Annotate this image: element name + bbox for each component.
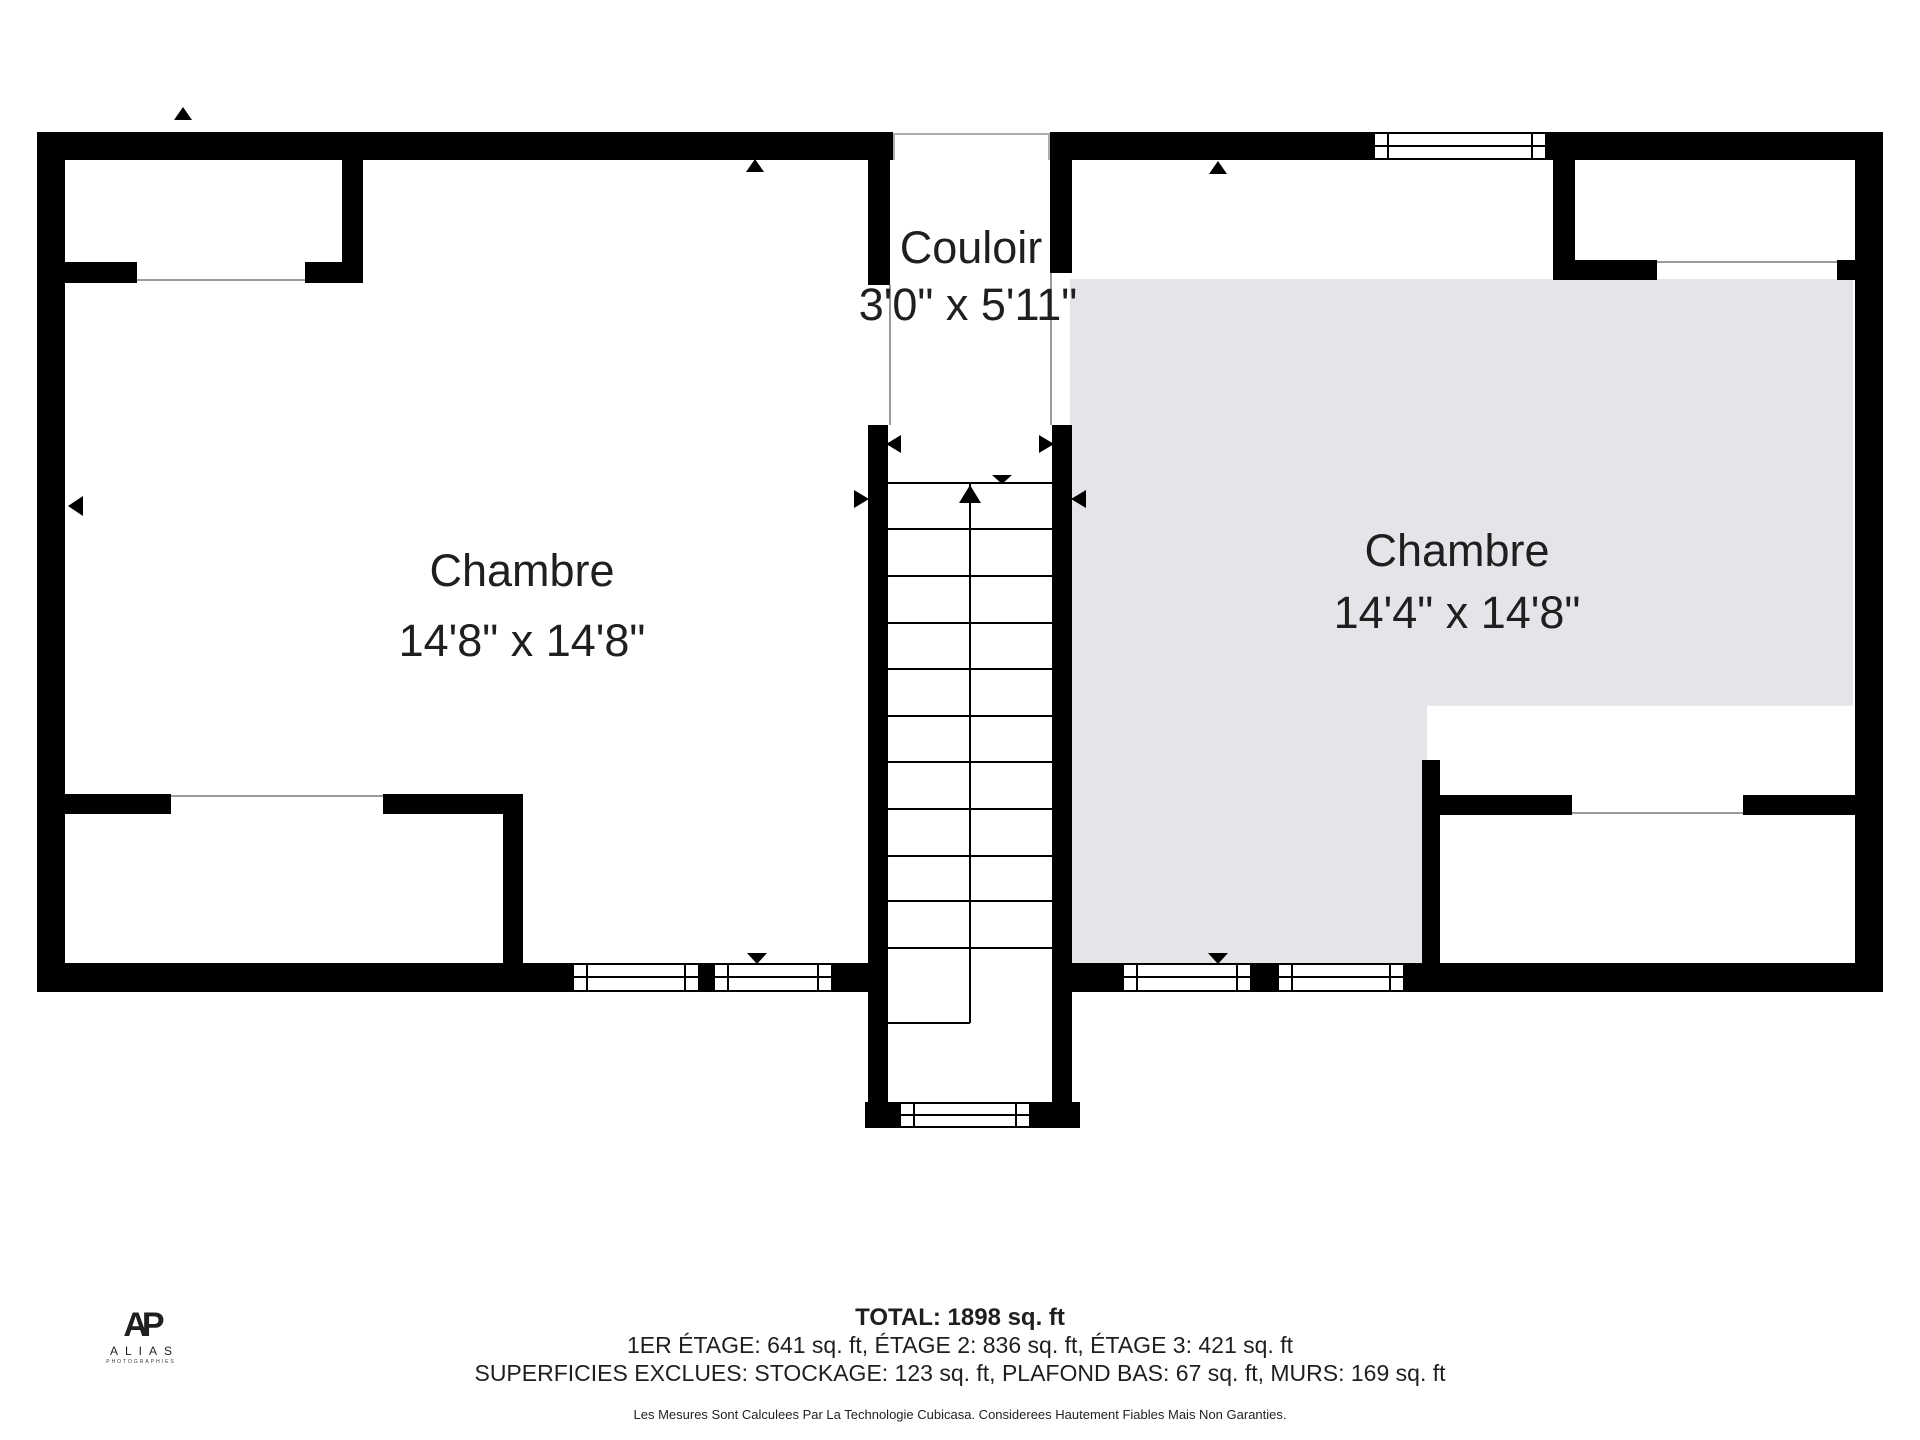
- right-bedroom-label: Chambre: [1197, 525, 1717, 577]
- stair-center-divider-line: [969, 482, 971, 1023]
- window-pane-line: [1124, 976, 1250, 978]
- closet-bottomleft-top-wall-b: [383, 794, 523, 814]
- window-cap: [1387, 134, 1389, 158]
- total-area-text: TOTAL: 1898 sq. ft: [0, 1304, 1920, 1332]
- left-bedroom-label: Chambre: [262, 545, 782, 597]
- alias-logo: AP ALIAS PHOTOGRAPHIES: [96, 1308, 186, 1365]
- closet-bottomright-door-line: [1572, 812, 1743, 814]
- window-bottom-right-2: [1277, 963, 1405, 992]
- closet-bottomleft-door-line: [171, 795, 383, 797]
- closet-bottomright-top-wall-b: [1743, 795, 1861, 815]
- closet-topleft-bottom-wall-b: [305, 262, 363, 283]
- window-bottom-right-1: [1122, 963, 1252, 992]
- door-marker-right-room-top-icon: [1209, 161, 1227, 174]
- window-pane-line: [1279, 976, 1403, 978]
- window-pane-line: [1375, 145, 1545, 147]
- wall-top-left-segment: [37, 132, 893, 160]
- door-marker-stair-left-icon: [886, 435, 901, 453]
- window-cap: [684, 965, 686, 990]
- hallway-dimensions: 3'0" x 5'11": [708, 279, 1228, 331]
- window-pane-line: [574, 976, 698, 978]
- wall-left-outer: [37, 132, 65, 992]
- alias-logo-monogram: AP: [96, 1308, 186, 1342]
- vestibule-bottom-wall-a: [865, 1102, 899, 1128]
- vestibule-bottom-wall-b: [1031, 1102, 1080, 1128]
- closet-topright-bottom-wall-b: [1837, 260, 1855, 280]
- hallway-label: Couloir: [711, 222, 1231, 274]
- excluded-areas-text: SUPERFICIES EXCLUES: STOCKAGE: 123 sq. f…: [0, 1360, 1920, 1387]
- window-cap: [1389, 965, 1391, 990]
- stair-top-door-marker-icon: [992, 475, 1012, 484]
- closet-bottomleft-right-wall: [503, 794, 523, 963]
- door-marker-left-room-top-icon: [746, 159, 764, 172]
- window-cap: [913, 1104, 915, 1126]
- disclaimer-text: Les Mesures Sont Calculees Par La Techno…: [0, 1407, 1920, 1422]
- window-bottom-left-2: [713, 963, 833, 992]
- alias-logo-name: ALIAS: [96, 1344, 186, 1358]
- wall-right-outer: [1855, 132, 1883, 992]
- window-bottom-left-1: [572, 963, 700, 992]
- stair-up-arrow-icon: [959, 485, 981, 503]
- window-cap: [727, 965, 729, 990]
- window-cap: [1015, 1104, 1017, 1126]
- closet-topright-door-line: [1657, 261, 1837, 263]
- floor-plan-page: Chambre 14'8" x 14'8" Chambre 14'4" x 14…: [0, 0, 1920, 1440]
- closet-bottomright-top-wall-a: [1422, 795, 1572, 815]
- window-cap: [1531, 134, 1533, 158]
- wall-top-right-segment: [1547, 132, 1883, 160]
- window-cap: [1136, 965, 1138, 990]
- window-pane-line: [715, 976, 831, 978]
- left-bedroom-dimensions: 14'8" x 14'8": [262, 615, 782, 667]
- right-bedroom-dimensions: 14'4" x 14'8": [1197, 587, 1717, 639]
- closet-bottomleft-top-wall-a: [65, 794, 171, 814]
- stair-right-wall: [1052, 425, 1072, 1128]
- window-cap: [817, 965, 819, 990]
- stair-right-wall-bottom-junction: [1052, 963, 1080, 992]
- floor-areas-text: 1ER ÉTAGE: 641 sq. ft, ÉTAGE 2: 836 sq. …: [0, 1332, 1920, 1359]
- door-marker-stair-right-icon: [1039, 435, 1054, 453]
- window-cap: [586, 965, 588, 990]
- stair-left-wall: [868, 425, 888, 1128]
- door-marker-left-room-entry-icon: [854, 490, 869, 508]
- window-pane-line: [901, 1114, 1029, 1116]
- closet-topright-bottom-wall-a: [1553, 260, 1657, 280]
- window-stair-vestibule: [899, 1102, 1031, 1128]
- door-marker-left-wall-icon: [68, 496, 83, 516]
- closet-topleft-bottom-wall-a: [65, 262, 137, 283]
- window-cap: [1291, 965, 1293, 990]
- door-marker-right-wall-icon: [1855, 495, 1870, 515]
- wall-top-middle-segment: [1050, 132, 1373, 160]
- window-cap: [1236, 965, 1238, 990]
- door-marker-right-room-entry-icon: [1071, 490, 1086, 508]
- closet-topleft-door-line: [137, 279, 305, 281]
- door-marker-top-exterior-icon: [174, 107, 192, 120]
- door-marker-bottom-left-window-icon: [747, 953, 767, 964]
- window-top-wall: [1373, 132, 1547, 160]
- door-marker-bottom-right-window-icon: [1208, 953, 1228, 964]
- stair-landing-line: [888, 1022, 970, 1024]
- hallway-top-opening: [893, 133, 1050, 160]
- alias-logo-tagline: PHOTOGRAPHIES: [96, 1359, 186, 1365]
